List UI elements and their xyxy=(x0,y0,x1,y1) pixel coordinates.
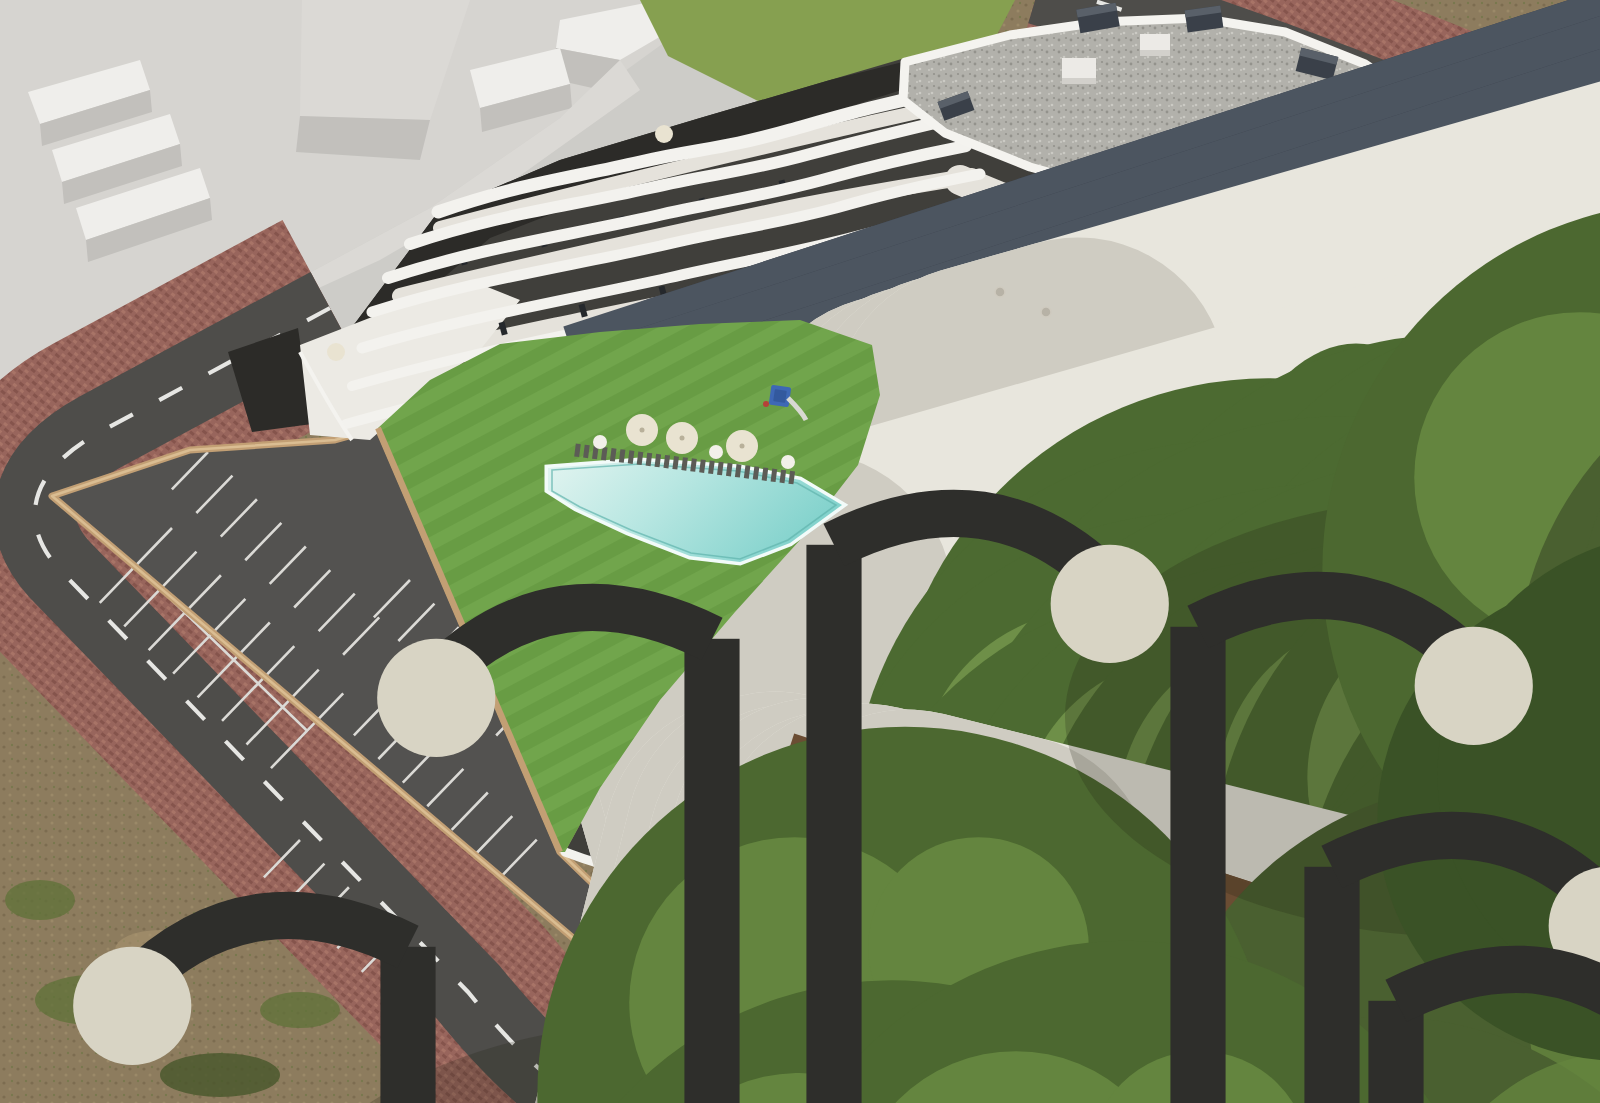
egg-chair xyxy=(1041,307,1051,317)
aerial-render xyxy=(0,0,1600,1103)
render-stage xyxy=(0,0,1600,1103)
terrace-umbrella xyxy=(655,125,673,143)
terrace-umbrella xyxy=(327,343,345,361)
egg-chair xyxy=(995,287,1005,297)
